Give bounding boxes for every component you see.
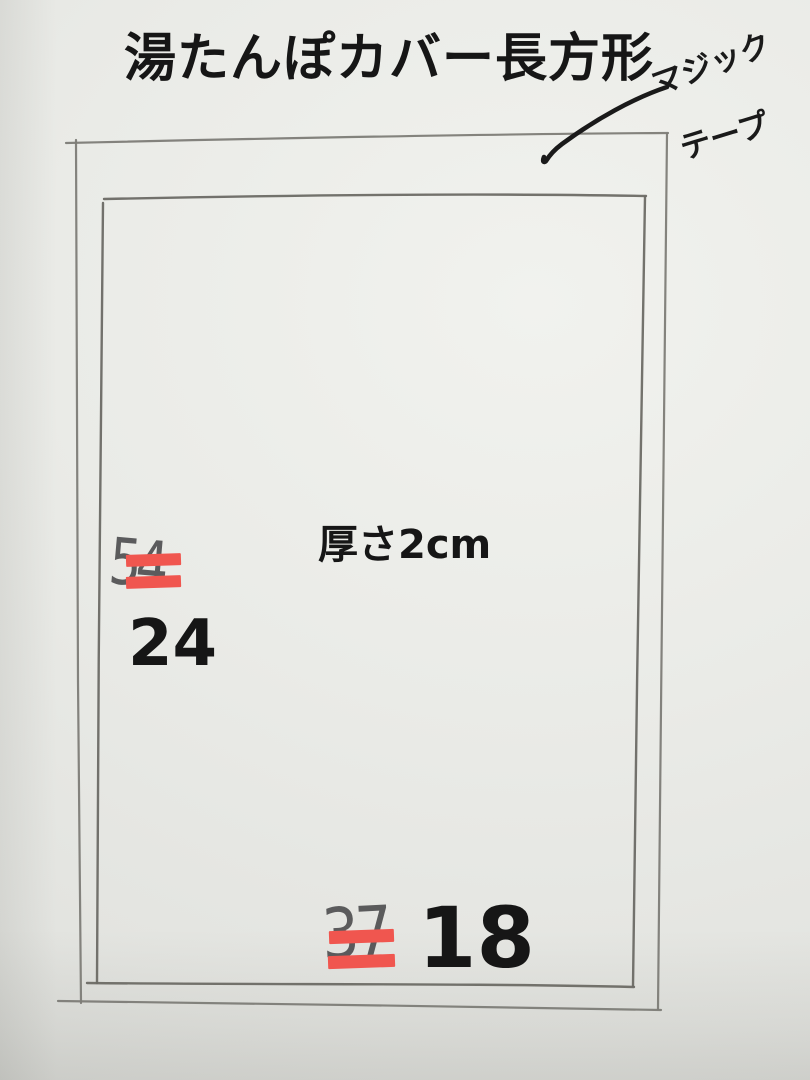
inner-rectangle-outline [87, 195, 646, 987]
pattern-photo: 湯たんぽカバー長方形 マジック テープ 厚さ2cm 54 24 37 18 [0, 0, 810, 1080]
left-measurement-value: 24 [128, 612, 217, 676]
strikethrough-bar [328, 954, 395, 969]
strikethrough-bar [126, 553, 181, 567]
bottom-measurement-value: 18 [418, 896, 535, 980]
strikethrough-bar [329, 929, 394, 944]
strikethrough-bar [126, 575, 181, 589]
velcro-note-line2: テープ [673, 98, 773, 168]
thickness-label: 厚さ2cm [318, 512, 491, 570]
velcro-arrow-line [543, 87, 667, 162]
pattern-title: 湯たんぽカバー長方形 [124, 30, 684, 90]
